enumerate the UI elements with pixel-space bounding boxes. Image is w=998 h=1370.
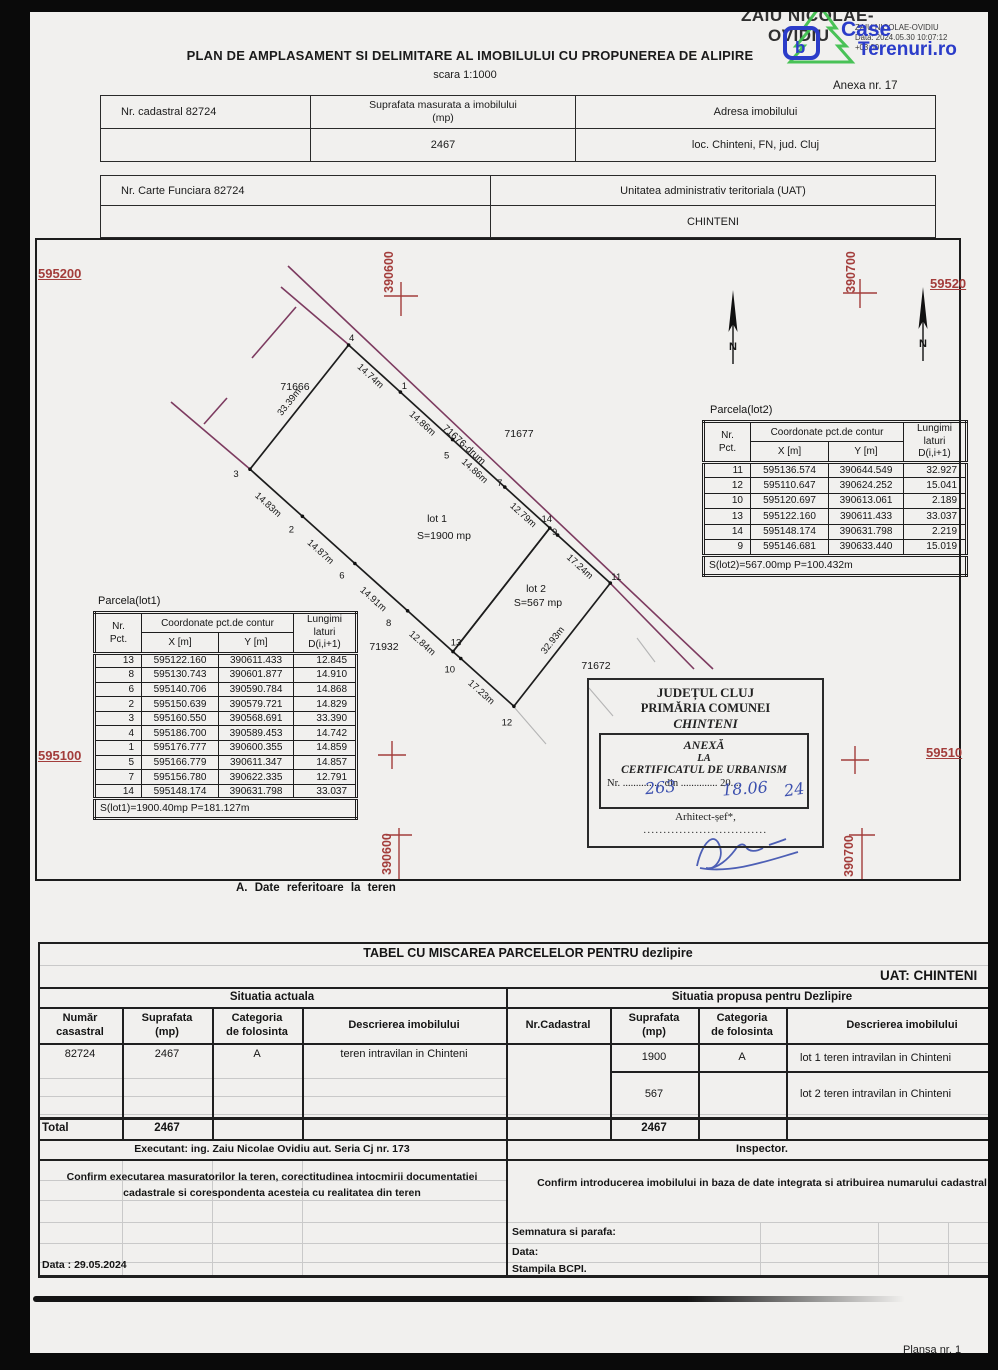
- lot1-row: 13595122.160390611.43312.845: [95, 653, 357, 668]
- stamp-certificate: CERTIFICATUL DE URBANISM: [601, 764, 807, 776]
- lot1-cell: 14.868: [294, 682, 357, 697]
- lot1-col-nr: Nr. Pct.: [95, 613, 142, 654]
- lot2-cell: 390613.061: [829, 493, 904, 509]
- lot2-cell: 595146.681: [751, 540, 829, 556]
- lot1-col-coord: Coordonate pct.de contur: [142, 613, 294, 633]
- stamp-chinteni: CHINTENI: [589, 716, 822, 732]
- lot1-cell: 595160.550: [142, 711, 219, 726]
- lot2-col-len: Lungimi laturi D(i,i+1): [904, 422, 967, 463]
- lot1-cell: 14.829: [294, 697, 357, 712]
- lot1-cell: 3: [95, 711, 142, 726]
- grid-label-390600-bottom: 390600: [380, 824, 394, 884]
- scan-border-right: [988, 0, 998, 1365]
- lot2-cell: 14: [704, 524, 751, 540]
- uat-header: Unitatea administrativ teritoriala (UAT): [491, 176, 936, 206]
- lot1-row: 4595186.700390589.45314.742: [95, 726, 357, 741]
- lot2-cell: 595120.697: [751, 493, 829, 509]
- lot1-cell: 7: [95, 770, 142, 785]
- stamp-inner-box: ANEXĂ LA CERTIFICATUL DE URBANISM Nr. ..…: [599, 733, 809, 809]
- lot2-row: 9595146.681390633.44015.019: [704, 540, 967, 556]
- lot2-cell: 595148.174: [751, 524, 829, 540]
- grid-label-595200: 595200: [38, 266, 81, 281]
- lot2-col-nr: Nr. Pct.: [704, 422, 751, 463]
- lot2-cell: 595110.647: [751, 478, 829, 494]
- lot1-cell: 390622.335: [219, 770, 294, 785]
- page-title: PLAN DE AMPLASAMENT SI DELIMITARE AL IMO…: [150, 46, 790, 64]
- lot1-cell: 390579.721: [219, 697, 294, 712]
- signature-name-line2: OVIDIU: [741, 26, 961, 46]
- lot2-row: 12595110.647390624.25215.041: [704, 478, 967, 494]
- lot1-cell: 595156.780: [142, 770, 219, 785]
- stamp-architect: Arhitect-șef*,: [589, 811, 822, 823]
- info-table-1: Nr. cadastral 82724 Suprafata masurata a…: [100, 95, 936, 162]
- lot2-cell: 10: [704, 493, 751, 509]
- lot2-col-x: X [m]: [751, 442, 829, 462]
- lot1-cell: 390589.453: [219, 726, 294, 741]
- lot2-cell: 12: [704, 478, 751, 494]
- urbanism-stamp: JUDEȚUL CLUJ PRIMĂRIA COMUNEI CHINTENI A…: [587, 678, 824, 848]
- lot1-cell: 390590.784: [219, 682, 294, 697]
- lot1-cell: 12.845: [294, 653, 357, 668]
- lot1-cell: 13: [95, 653, 142, 668]
- lot2-cell: 390624.252: [829, 478, 904, 494]
- lot1-cell: 390600.355: [219, 741, 294, 756]
- scan-border-left: [0, 0, 30, 1365]
- lot1-row: 8595130.743390601.87714.910: [95, 668, 357, 683]
- lot2-cell: 390631.798: [829, 524, 904, 540]
- lot1-table-title: Parcela(lot1): [98, 595, 160, 607]
- lot1-cell: 595122.160: [142, 653, 219, 668]
- lot1-cell: 14.859: [294, 741, 357, 756]
- lot2-table-title: Parcela(lot2): [710, 404, 772, 416]
- lot1-cell: 595130.743: [142, 668, 219, 683]
- stamp-dotted-line: ...............................: [589, 825, 822, 836]
- lot1-cell: 14.857: [294, 755, 357, 770]
- lot1-col-x: X [m]: [142, 633, 219, 653]
- scan-artifact-line: [33, 1296, 905, 1302]
- grid-label-390700-top: 390700: [844, 242, 858, 302]
- lot1-cell: 390568.691: [219, 711, 294, 726]
- grid-label-390600-top: 390600: [382, 242, 396, 302]
- lot2-cell: 390644.549: [829, 462, 904, 478]
- stamp-hand-number: 263: [644, 777, 676, 799]
- lot1-col-len: Lungimi laturi D(i,i+1): [294, 613, 357, 654]
- grid-label-59510: 59510: [926, 745, 962, 760]
- grid-label-390700-bottom: 390700: [842, 826, 856, 886]
- lot1-cell: 390611.433: [219, 653, 294, 668]
- lot2-cell: 15.019: [904, 540, 967, 556]
- measured-area-value: 2467: [311, 129, 576, 162]
- measured-area-header: Suprafata masurata a imobilului (mp): [311, 96, 576, 129]
- land-book-value: [101, 206, 491, 238]
- stamp-la: LA: [601, 753, 807, 764]
- scan-border-top: [0, 0, 998, 12]
- lot1-row: 5595166.779390611.34714.857: [95, 755, 357, 770]
- cadastral-number-header: Nr. cadastral 82724: [101, 96, 311, 129]
- lot1-cell: 1: [95, 741, 142, 756]
- stamp-commune: PRIMĂRIA COMUNEI: [589, 701, 822, 716]
- lot1-cell: 8: [95, 668, 142, 683]
- lot1-cell: 595140.706: [142, 682, 219, 697]
- lot2-table: Nr. Pct. Coordonate pct.de contur Lungim…: [702, 420, 968, 577]
- lot1-table-footer: S(lot1)=1900.40mp P=181.127m: [95, 799, 357, 819]
- lot2-cell: 15.041: [904, 478, 967, 494]
- lot2-row: 13595122.160390611.43333.037: [704, 509, 967, 525]
- lot1-cell: 14.742: [294, 726, 357, 741]
- lot1-cell: 595176.777: [142, 741, 219, 756]
- address-header: Adresa imobilului: [576, 96, 936, 129]
- lot2-cell: 390611.433: [829, 509, 904, 525]
- scale-label: scara 1:1000: [350, 68, 580, 82]
- lot1-row: 3595160.550390568.69133.390: [95, 711, 357, 726]
- lot1-cell: 33.037: [294, 784, 357, 799]
- annex-label: Anexa nr. 17: [833, 80, 898, 92]
- lot1-cell: 390631.798: [219, 784, 294, 799]
- lot1-cell: 14.910: [294, 668, 357, 683]
- lot1-row: 1595176.777390600.35514.859: [95, 741, 357, 756]
- lot2-cell: 13: [704, 509, 751, 525]
- lot2-cell: 595136.574: [751, 462, 829, 478]
- land-book-header: Nr. Carte Funciara 82724: [101, 176, 491, 206]
- stamp-anexa: ANEXĂ: [601, 738, 807, 753]
- lot1-cell: 5: [95, 755, 142, 770]
- grid-label-595100: 595100: [38, 748, 81, 763]
- grid-label-59520: 59520: [930, 276, 966, 291]
- stamp-hand-year: 24: [783, 779, 806, 801]
- lot1-cell: 6: [95, 682, 142, 697]
- lot1-cell: 595186.700: [142, 726, 219, 741]
- lot1-row: 7595156.780390622.33512.791: [95, 770, 357, 785]
- uat-value: CHINTENI: [491, 206, 936, 238]
- lot1-cell: 33.390: [294, 711, 357, 726]
- stamp-county: JUDEȚUL CLUJ: [589, 685, 822, 701]
- lot2-col-coord: Coordonate pct.de contur: [751, 422, 904, 442]
- lot2-col-y: Y [m]: [829, 442, 904, 462]
- lot2-cell: 9: [704, 540, 751, 556]
- lot2-table-body: 11595136.574390644.54932.92712595110.647…: [704, 462, 967, 555]
- lot1-row: 6595140.706390590.78414.868: [95, 682, 357, 697]
- lot2-table-footer: S(lot2)=567.00mp P=100.432m: [704, 555, 967, 575]
- lot1-cell: 390611.347: [219, 755, 294, 770]
- lot1-cell: 390601.877: [219, 668, 294, 683]
- lot1-row: 2595150.639390579.72114.829: [95, 697, 357, 712]
- lot1-cell: 595166.779: [142, 755, 219, 770]
- address-value: loc. Chinteni, FN, jud. Cluj: [576, 129, 936, 162]
- map-caption: A. Date referitoare la teren: [236, 882, 396, 894]
- cadastral-number-value: [101, 129, 311, 162]
- info-table-2: Nr. Carte Funciara 82724 Unitatea admini…: [100, 175, 936, 238]
- lot1-row: 14595148.174390631.79833.037: [95, 784, 357, 799]
- lot2-cell: 595122.160: [751, 509, 829, 525]
- lot1-cell: 14: [95, 784, 142, 799]
- lot1-cell: 595150.639: [142, 697, 219, 712]
- stamp-hand-date: 18.06: [721, 777, 768, 799]
- lot2-row: 11595136.574390644.54932.927: [704, 462, 967, 478]
- stamp-nr-line: Nr. ............... din .............. 2…: [601, 778, 807, 789]
- lot1-table: Nr. Pct. Coordonate pct.de contur Lungim…: [93, 611, 358, 820]
- lot2-cell: 33.037: [904, 509, 967, 525]
- lot2-cell: 390633.440: [829, 540, 904, 556]
- lot1-table-body: 13595122.160390611.43312.8458595130.7433…: [95, 653, 357, 799]
- lot2-cell: 32.927: [904, 462, 967, 478]
- lot1-cell: 4: [95, 726, 142, 741]
- scan-border-bottom: [0, 1353, 998, 1365]
- lot1-col-y: Y [m]: [219, 633, 294, 653]
- lot1-cell: 12.791: [294, 770, 357, 785]
- lot1-cell: 2: [95, 697, 142, 712]
- lot2-cell: 2.219: [904, 524, 967, 540]
- lot1-cell: 595148.174: [142, 784, 219, 799]
- lot2-cell: 2.189: [904, 493, 967, 509]
- lot2-row: 14595148.174390631.7982.219: [704, 524, 967, 540]
- lot2-cell: 11: [704, 462, 751, 478]
- lot2-row: 10595120.697390613.0612.189: [704, 493, 967, 509]
